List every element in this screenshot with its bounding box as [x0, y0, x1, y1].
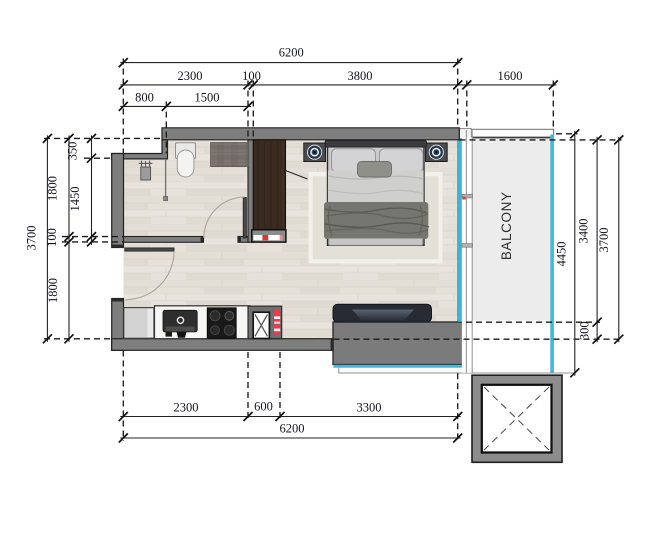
svg-text:2300: 2300 [174, 401, 199, 415]
svg-text:6200: 6200 [279, 46, 304, 60]
svg-text:3700: 3700 [24, 226, 38, 251]
svg-text:3400: 3400 [577, 219, 591, 244]
svg-text:350: 350 [66, 142, 80, 161]
svg-text:600: 600 [254, 400, 273, 414]
svg-text:100: 100 [45, 228, 59, 247]
svg-text:6200: 6200 [280, 422, 305, 436]
svg-text:1600: 1600 [498, 69, 523, 83]
svg-text:1500: 1500 [195, 91, 220, 105]
svg-text:100: 100 [242, 69, 261, 83]
svg-text:1450: 1450 [68, 187, 82, 212]
svg-text:2300: 2300 [178, 69, 203, 83]
svg-text:300: 300 [578, 321, 592, 340]
svg-text:3300: 3300 [357, 401, 382, 415]
svg-text:3800: 3800 [348, 69, 373, 83]
svg-text:4450: 4450 [555, 242, 569, 267]
svg-text:800: 800 [135, 91, 154, 105]
svg-text:BALCONY: BALCONY [499, 191, 514, 260]
svg-text:1800: 1800 [46, 278, 60, 303]
svg-text:1800: 1800 [46, 176, 60, 201]
svg-text:3700: 3700 [597, 228, 611, 253]
